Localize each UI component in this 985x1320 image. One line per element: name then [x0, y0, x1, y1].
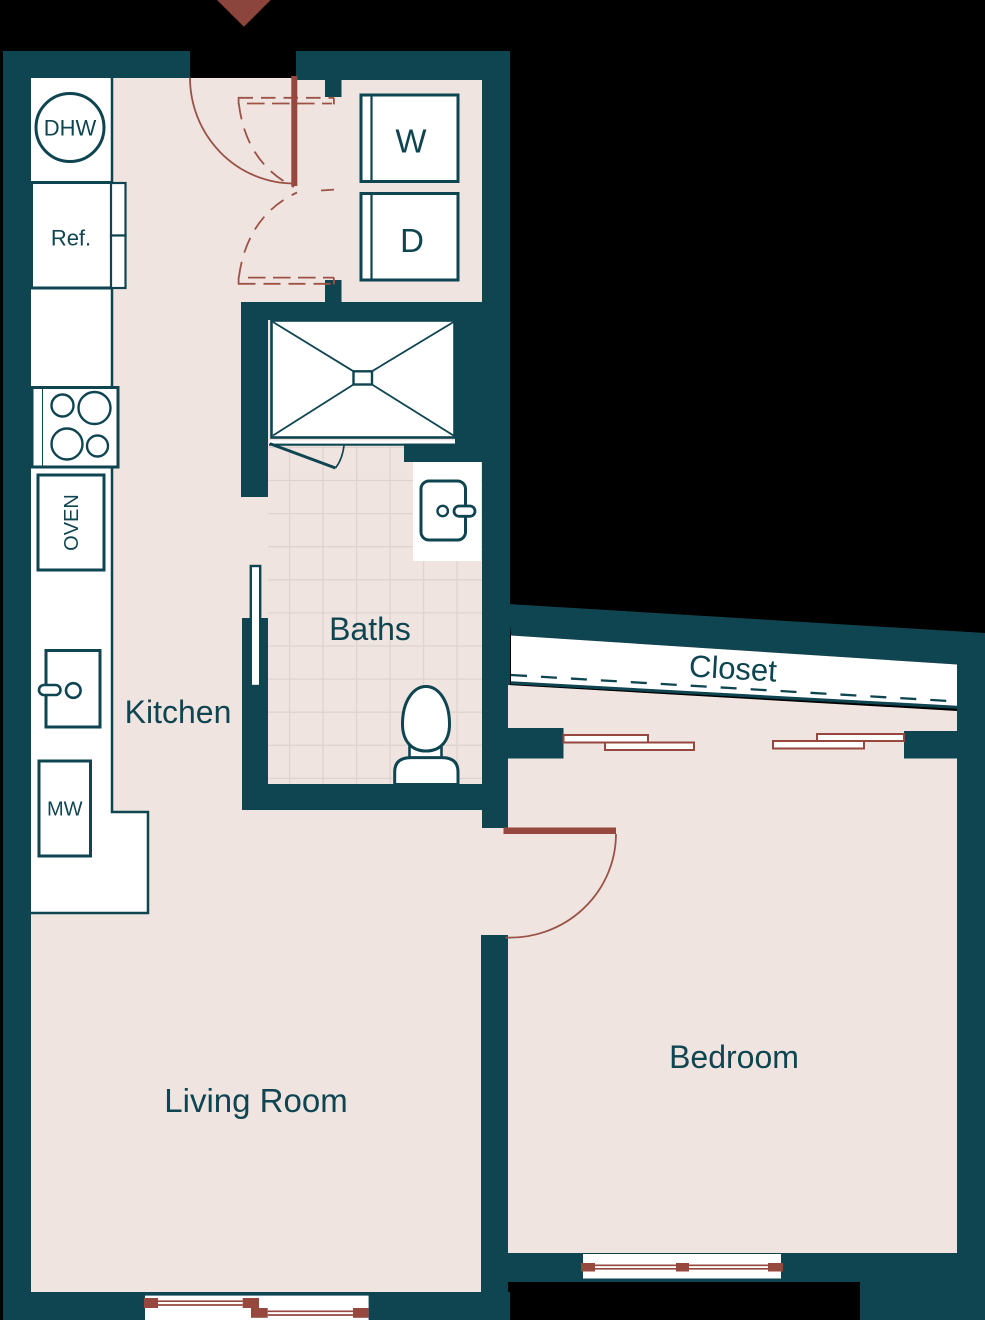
svg-text:DHW: DHW [44, 116, 97, 141]
svg-text:Living Room: Living Room [164, 1082, 347, 1119]
svg-text:OVEN: OVEN [61, 494, 83, 551]
svg-text:W: W [395, 123, 427, 160]
svg-text:Baths: Baths [329, 611, 411, 647]
svg-text:Ref.: Ref. [51, 226, 91, 251]
svg-text:MW: MW [47, 799, 83, 821]
svg-text:Kitchen: Kitchen [125, 694, 232, 730]
svg-text:Bedroom: Bedroom [669, 1039, 799, 1075]
svg-text:Closet: Closet [688, 648, 778, 688]
svg-text:D: D [400, 222, 424, 259]
